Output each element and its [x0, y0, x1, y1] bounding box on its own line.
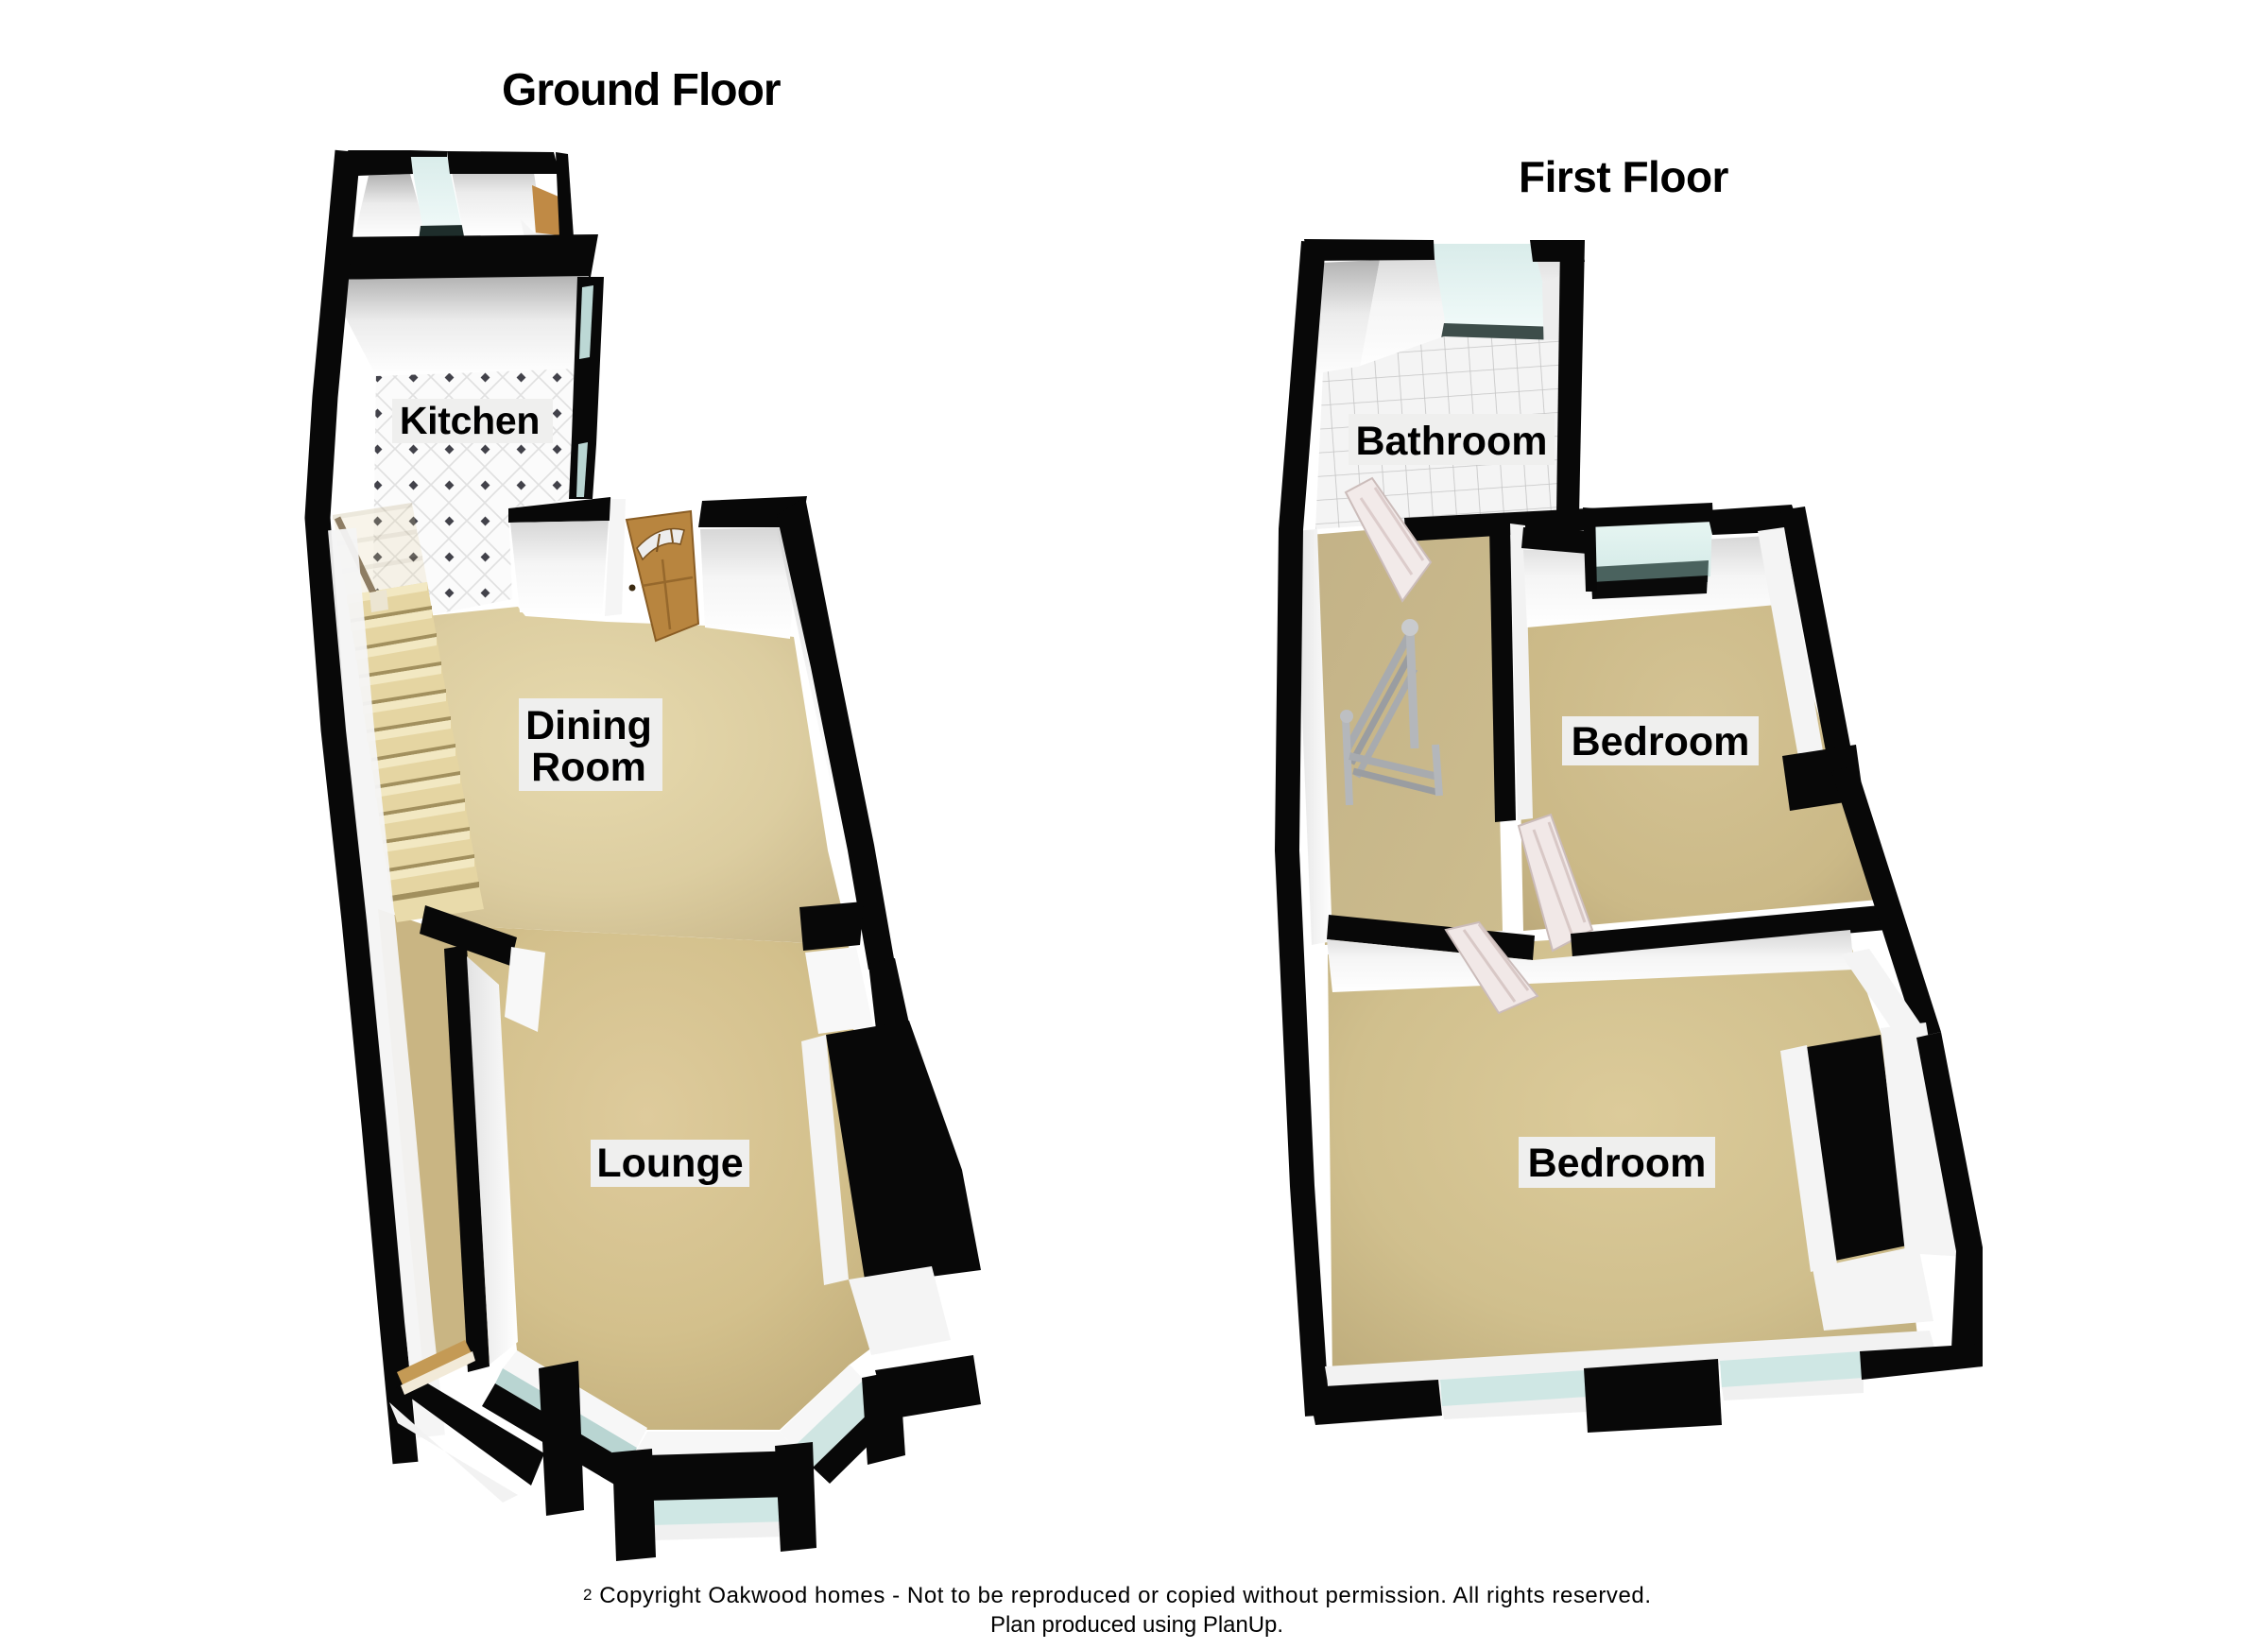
svg-text:Room: Room [531, 745, 646, 790]
svg-text:Dining: Dining [525, 703, 652, 748]
svg-text:Ground Floor: Ground Floor [502, 65, 781, 115]
svg-text:Lounge: Lounge [596, 1141, 743, 1186]
svg-text:2 Copyright Oakwood homes - No: 2 Copyright Oakwood homes - Not to be re… [583, 1583, 1651, 1608]
svg-text:Bedroom: Bedroom [1572, 719, 1750, 764]
svg-text:Bathroom: Bathroom [1355, 419, 1547, 464]
svg-text:Kitchen: Kitchen [400, 399, 540, 442]
svg-text:First Floor: First Floor [1519, 152, 1729, 201]
svg-text:Plan produced using PlanUp.: Plan produced using PlanUp. [990, 1612, 1283, 1638]
svg-text:Bedroom: Bedroom [1528, 1141, 1707, 1186]
